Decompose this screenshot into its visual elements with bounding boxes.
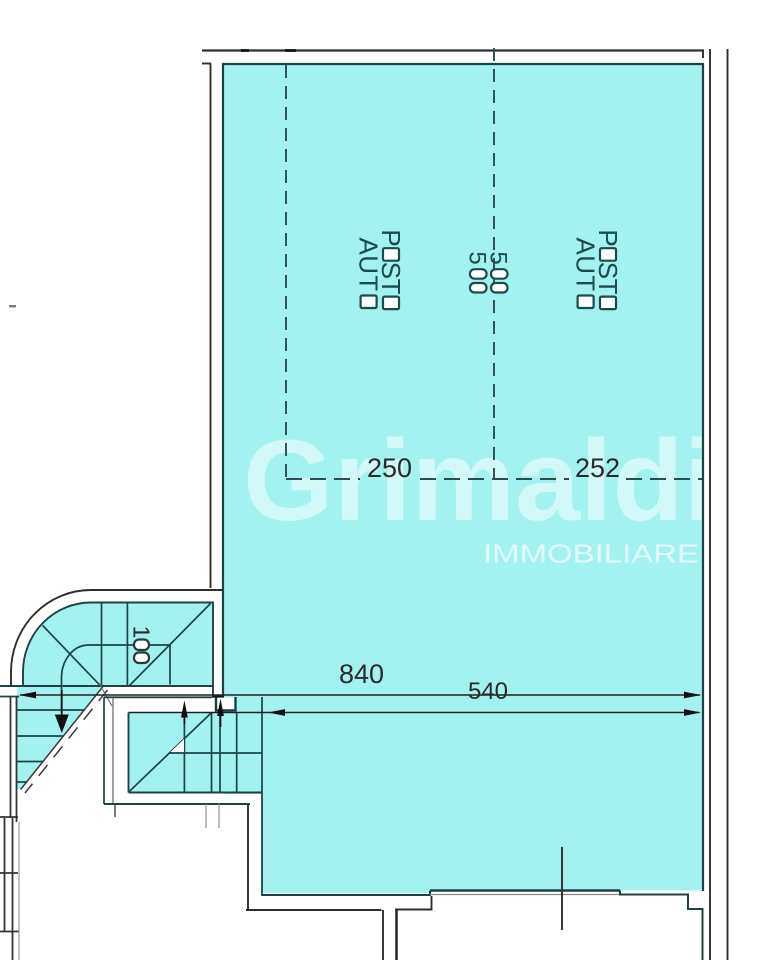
svg-text:IMMOBILIARE: IMMOBILIARE: [483, 539, 699, 569]
svg-text:U: U: [354, 255, 384, 274]
svg-text:T: T: [571, 275, 601, 291]
svg-text:A: A: [571, 238, 601, 256]
svg-text:252: 252: [575, 453, 620, 483]
svg-text:840: 840: [339, 659, 384, 689]
svg-text:A: A: [354, 238, 384, 256]
svg-text:U: U: [571, 255, 601, 274]
svg-text:250: 250: [367, 453, 412, 483]
svg-text:T: T: [354, 275, 384, 291]
svg-text:Grimaldi: Grimaldi: [243, 417, 716, 545]
svg-text:1: 1: [129, 626, 155, 639]
svg-text:5: 5: [464, 251, 491, 264]
svg-text:540: 540: [468, 678, 508, 705]
